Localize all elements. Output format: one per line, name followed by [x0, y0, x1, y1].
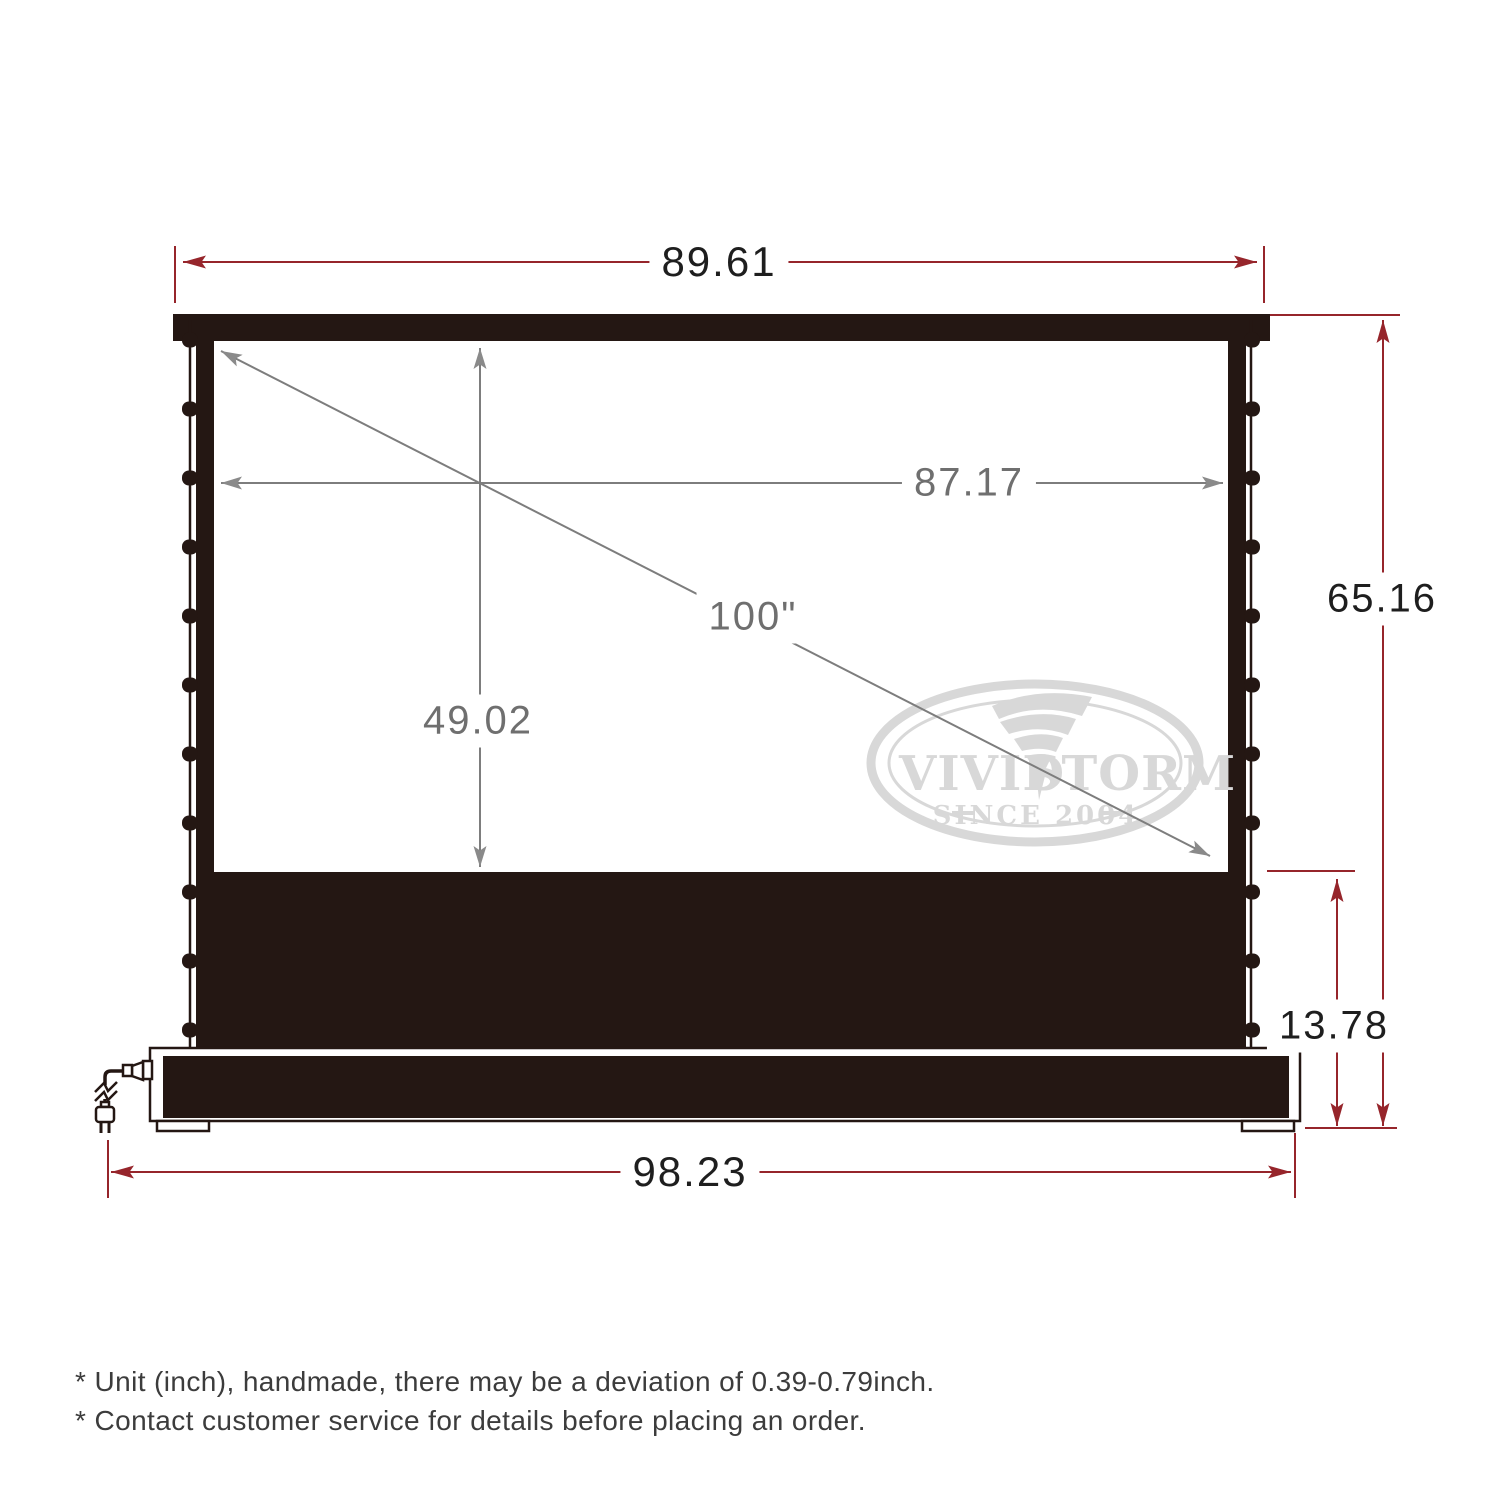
power-cord [95, 1061, 152, 1133]
watermark-word-storm: STORM [1026, 746, 1236, 802]
base-body [163, 1056, 1289, 1118]
top-cap-bar [173, 314, 1270, 341]
watermark-tagline: SINCE 2004 [933, 801, 1140, 831]
dim-top-width-label: 89.61 [649, 234, 788, 290]
dim-base-height-label: 13.78 [1267, 1000, 1401, 1053]
screen-frame [173, 314, 1270, 1048]
dim-overall-height-label: 65.16 [1315, 573, 1449, 626]
base-housing [150, 1048, 1300, 1131]
brand-watermark: VIVID STORM SINCE 2004 [871, 684, 1236, 842]
dim-base-width-label: 98.23 [620, 1144, 759, 1200]
footnote-unit-deviation: * Unit (inch), handmade, there may be a … [75, 1366, 935, 1398]
dim-viewable-height-label: 49.02 [411, 695, 545, 748]
plug-body [96, 1107, 114, 1122]
plug-prongs [101, 1122, 109, 1133]
dim-viewable-width-label: 87.17 [902, 457, 1036, 510]
footnote-contact-service: * Contact customer service for details b… [75, 1405, 866, 1437]
dimension-drawing-svg: VIVID STORM SINCE 2004 [0, 0, 1500, 1500]
base-foot-right [1242, 1121, 1294, 1131]
base-foot-left [157, 1121, 209, 1131]
projector-screen-dimension-diagram: VIVID STORM SINCE 2004 [0, 0, 1500, 1500]
black-drop-section [196, 872, 1246, 1048]
dim-diagonal-label: 100" [697, 591, 810, 644]
